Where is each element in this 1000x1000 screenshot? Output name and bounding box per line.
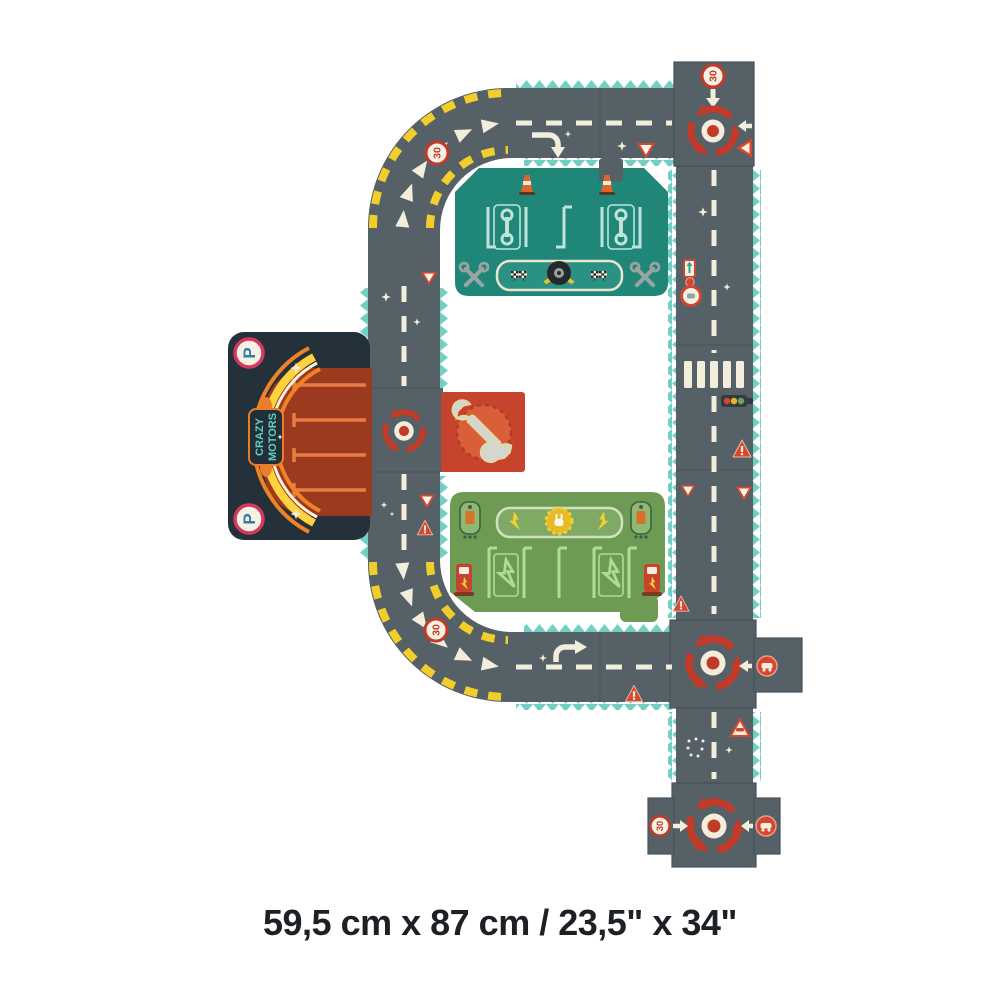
charging-area <box>450 492 665 622</box>
charge-tower-icon <box>460 502 480 539</box>
parking-area: P P CRAZY MOTORS <box>228 332 372 540</box>
parking-letter: P <box>240 513 259 524</box>
parking-sign: P <box>235 339 263 367</box>
speed-sign <box>702 65 724 87</box>
logo-line1: CRAZY <box>254 417 266 456</box>
road-puzzle-illustration: 30 <box>0 0 1000 1000</box>
charging-pump-icon <box>642 564 662 596</box>
car-sign <box>757 656 777 676</box>
parking-sign: P <box>235 505 263 533</box>
brand-logo: CRAZY MOTORS <box>249 397 283 477</box>
car-sign <box>756 816 776 836</box>
no-entry-sign <box>682 287 701 306</box>
sign-badge <box>686 278 694 286</box>
charge-tower-icon <box>631 502 651 539</box>
charging-plug-icon <box>546 508 572 534</box>
road-connector-tab <box>599 158 623 182</box>
product-image: 30 <box>0 0 1000 1000</box>
speed-sign-bottom-curve <box>425 619 447 641</box>
garage-sign-piece <box>441 392 525 472</box>
parking-letter: P <box>240 347 259 358</box>
charging-pump-icon <box>454 564 474 596</box>
speed-sign-top-curve <box>426 142 448 164</box>
dimensions-caption: 59,5 cm x 87 cm / 23,5" x 34" <box>0 902 1000 944</box>
speed-sign <box>650 816 669 835</box>
pit-stop-area <box>455 158 668 296</box>
direction-sign <box>684 260 695 277</box>
logo-line2: MOTORS <box>267 413 279 461</box>
